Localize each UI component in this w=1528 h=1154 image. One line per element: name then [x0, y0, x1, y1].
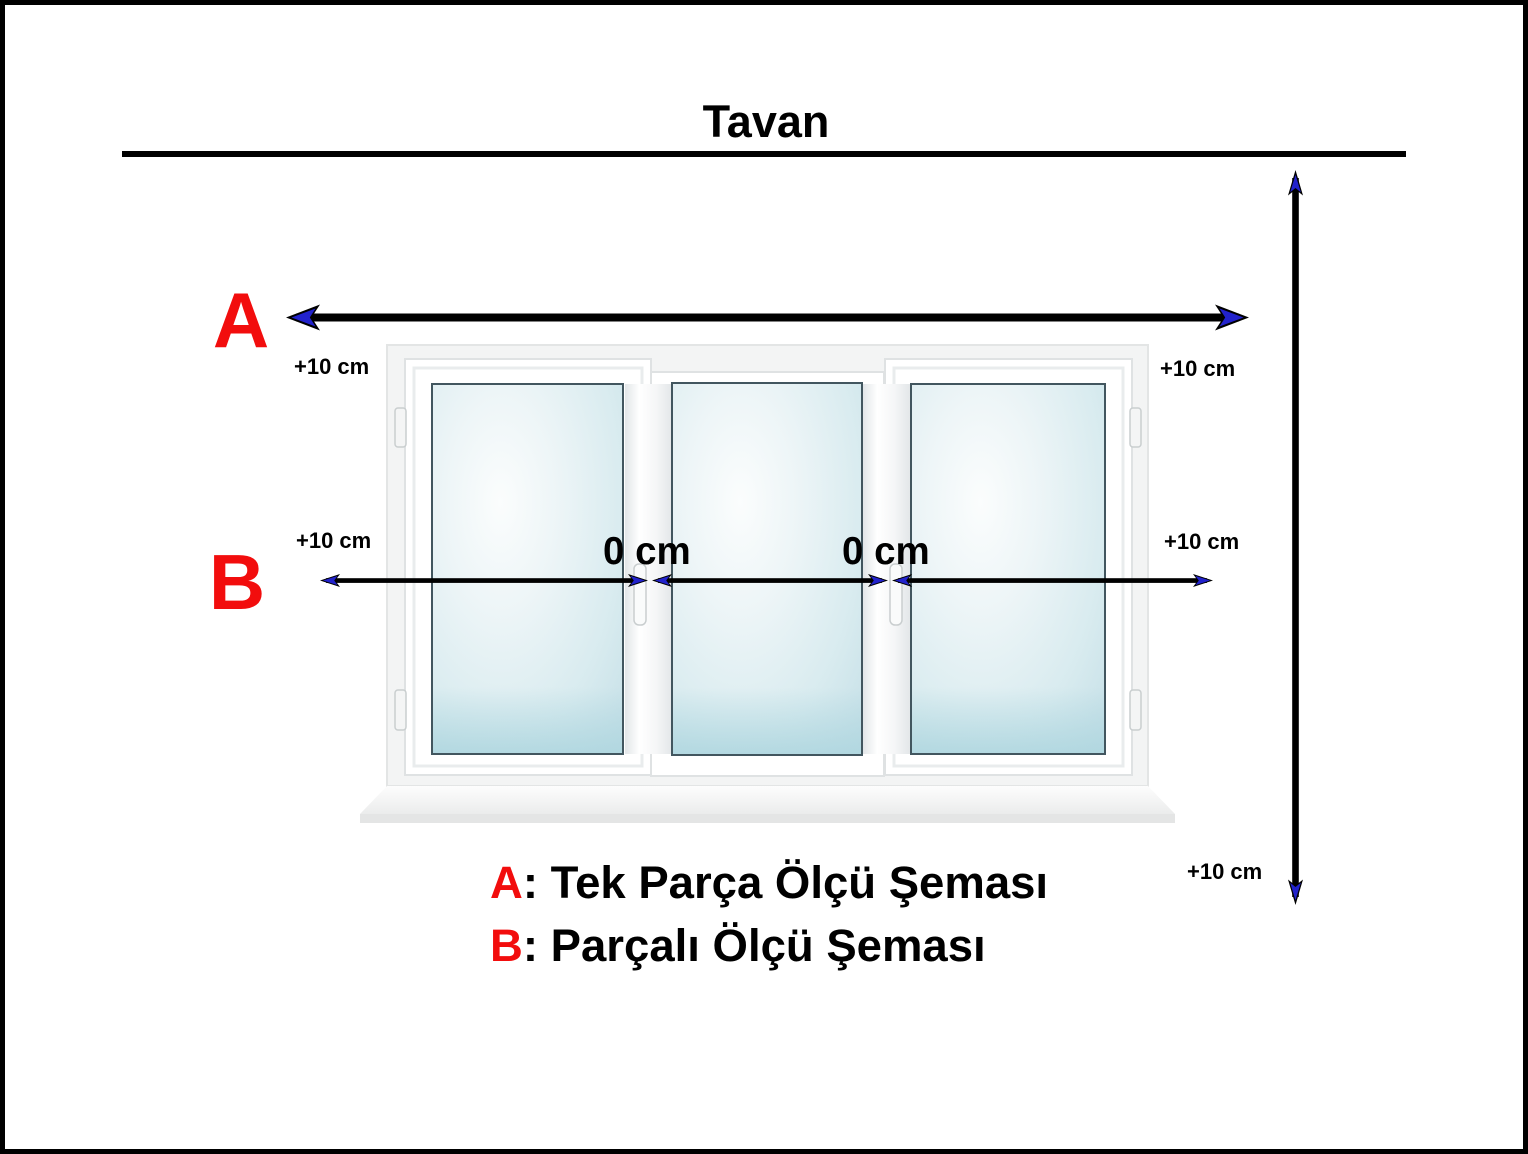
svg-text:+10 cm: +10 cm	[294, 354, 369, 379]
svg-text:+10 cm: +10 cm	[1187, 859, 1262, 884]
svg-text:A: Tek Parça Ölçü Şeması: A: Tek Parça Ölçü Şeması	[490, 857, 1048, 908]
svg-text:+10 cm: +10 cm	[296, 528, 371, 553]
svg-text:+10 cm: +10 cm	[1160, 356, 1235, 381]
svg-text:+10 cm: +10 cm	[1164, 529, 1239, 554]
svg-text:0 cm: 0 cm	[603, 530, 691, 573]
svg-text:Tavan: Tavan	[703, 96, 830, 147]
svg-text:A: A	[213, 276, 269, 364]
svg-text:B: Parçalı Ölçü Şeması: B: Parçalı Ölçü Şeması	[490, 920, 986, 971]
svg-text:0 cm: 0 cm	[842, 530, 930, 573]
svg-text:B: B	[209, 538, 265, 626]
